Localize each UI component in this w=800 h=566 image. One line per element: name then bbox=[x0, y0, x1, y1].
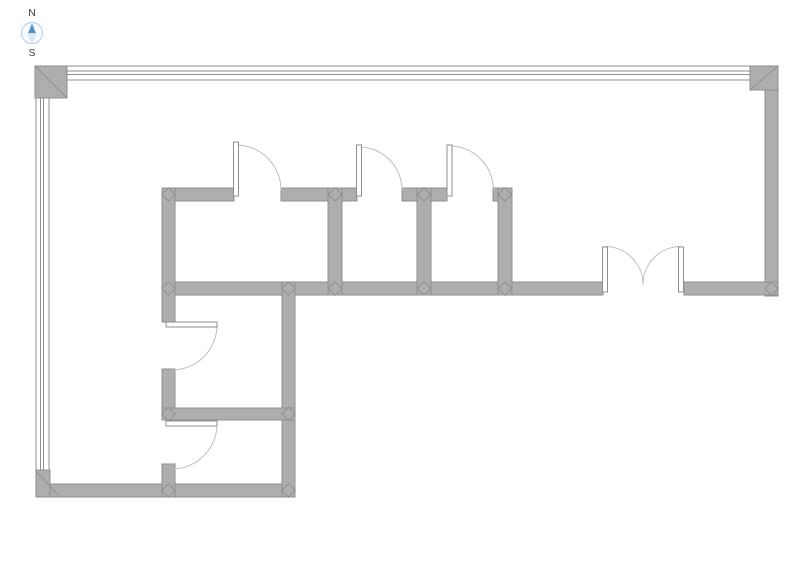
window-top bbox=[66, 66, 752, 80]
door-leaf bbox=[603, 247, 608, 292]
door-swing-arc bbox=[359, 147, 402, 190]
window-frame bbox=[36, 97, 49, 471]
window-frame bbox=[66, 66, 752, 80]
floor-plan-canvas: N S bbox=[0, 0, 800, 566]
wall-lower-rooms-partition bbox=[162, 408, 295, 420]
door-lower-room-upper bbox=[166, 322, 217, 370]
door-swing-arc bbox=[236, 145, 281, 190]
wall-left-interior-upper bbox=[162, 188, 175, 322]
wall-middle-section-bottom bbox=[162, 282, 603, 295]
door-leaf bbox=[679, 247, 684, 292]
door-swing-arc bbox=[605, 247, 643, 285]
door-swing-arc bbox=[172, 325, 217, 370]
corner-top-left bbox=[35, 66, 67, 98]
exterior-walls bbox=[35, 66, 778, 497]
double-door-entrance bbox=[603, 247, 684, 293]
interior-walls bbox=[162, 188, 512, 497]
corner-top-right bbox=[750, 66, 778, 90]
wall-partition-room2-room3 bbox=[417, 188, 431, 295]
door-room3 bbox=[447, 145, 494, 196]
wall-exterior-right bbox=[765, 85, 778, 296]
wall-junction-marks bbox=[162, 188, 778, 497]
compass-north-label: N bbox=[28, 7, 36, 19]
compass-rose-icon: N S bbox=[22, 7, 43, 59]
door-lower-room-lower bbox=[166, 421, 217, 469]
floor-plan-drawing: N S bbox=[0, 0, 800, 566]
wall-room3-right bbox=[498, 188, 512, 295]
window-left bbox=[36, 97, 49, 471]
door-swing-arc bbox=[450, 146, 494, 190]
door-leaf bbox=[166, 322, 217, 327]
door-leaf bbox=[447, 145, 452, 196]
door-leaf bbox=[166, 421, 217, 426]
door-leaf bbox=[357, 145, 362, 196]
wall-right-section-bottom bbox=[684, 282, 778, 295]
wall-lower-rooms-right bbox=[282, 282, 295, 497]
wall-rooms-top-seg2 bbox=[281, 188, 357, 201]
door-leaf bbox=[234, 142, 239, 196]
door-swing-arc bbox=[643, 247, 681, 285]
door-room1 bbox=[234, 142, 282, 196]
door-swing-arc bbox=[172, 424, 217, 469]
wall-partition-room1-room2 bbox=[328, 188, 342, 295]
door-room2 bbox=[357, 145, 403, 196]
compass-south-label: S bbox=[28, 47, 35, 59]
